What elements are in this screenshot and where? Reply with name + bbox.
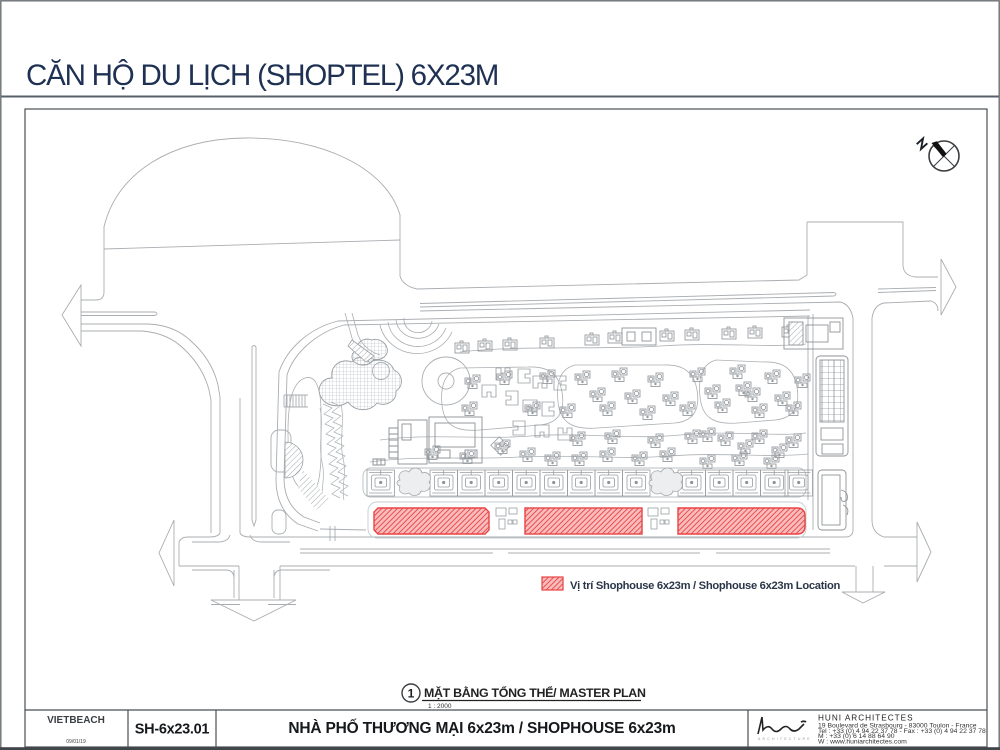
svg-text:1: 1: [408, 687, 415, 701]
svg-text:MẶT BẰNG TỔNG THỂ/ MASTER PLAN: MẶT BẰNG TỔNG THỂ/ MASTER PLAN: [424, 685, 646, 700]
svg-text:HUNI ARCHITECTES: HUNI ARCHITECTES: [818, 714, 914, 723]
svg-text:ARCHITECTURE: ARCHITECTURE: [758, 737, 812, 741]
svg-text:CĂN HỘ DU LỊCH (SHOPTEL) 6X23M: CĂN HỘ DU LỊCH (SHOPTEL) 6X23M: [26, 58, 498, 92]
svg-text:NHÀ PHỐ THƯƠNG MẠI 6x23m / SHO: NHÀ PHỐ THƯƠNG MẠI 6x23m / SHOPHOUSE 6x2…: [288, 719, 675, 737]
svg-text:SH-6x23.01: SH-6x23.01: [135, 722, 210, 738]
svg-text:Vị trí Shophouse 6x23m / Shoph: Vị trí Shophouse 6x23m / Shophouse 6x23m…: [570, 580, 840, 592]
svg-text:1 : 2000: 1 : 2000: [428, 703, 452, 710]
svg-text:09/01/19: 09/01/19: [66, 739, 86, 745]
svg-text:VIETBEACH: VIETBEACH: [47, 715, 105, 726]
svg-text:W : www.huniarchitectes.com: W : www.huniarchitectes.com: [818, 738, 907, 745]
